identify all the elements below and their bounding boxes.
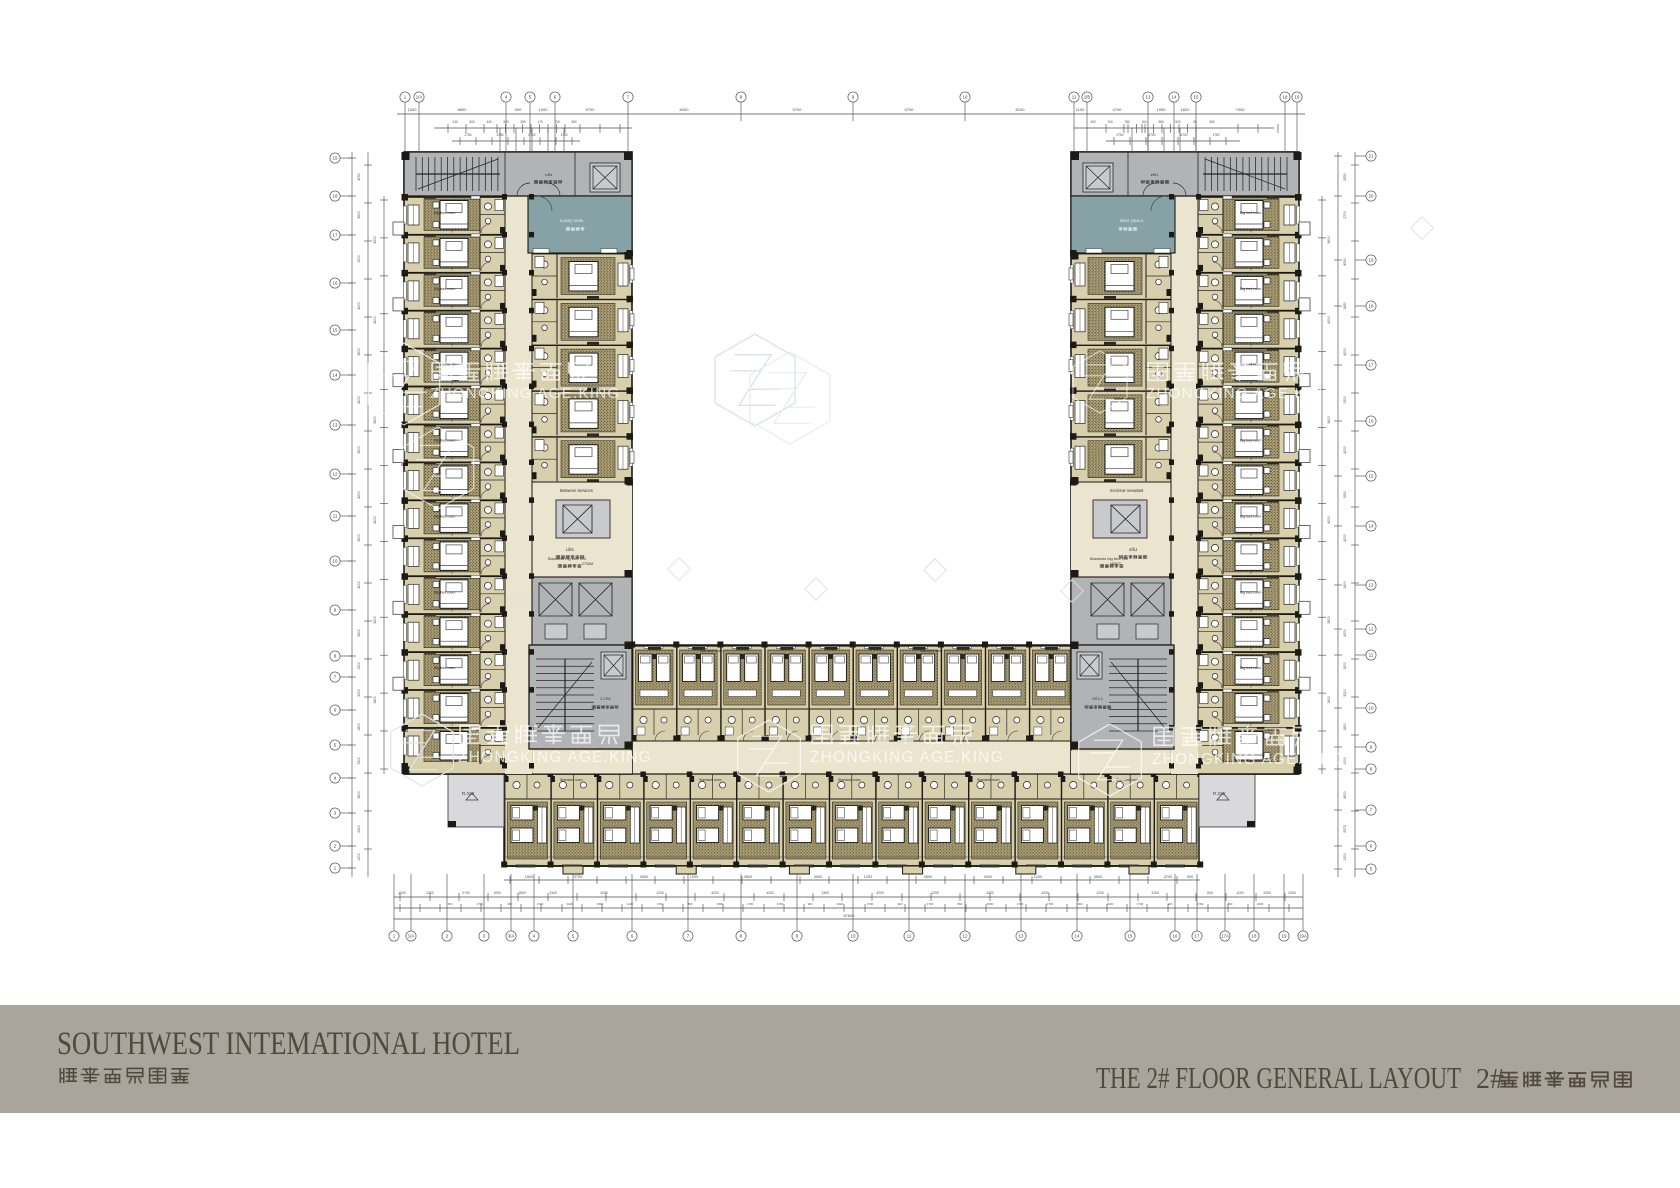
svg-text:ZHONGKING AGE.KING: ZHONGKING AGE.KING [810,749,1004,766]
svg-text:3600: 3600 [357,348,361,356]
svg-text:Big bed room: Big bed room [1240,287,1261,291]
svg-text:4050: 4050 [357,173,361,181]
svg-text:1700: 1700 [867,902,874,906]
svg-text:1200: 1200 [1096,891,1104,895]
svg-text:16: 16 [1369,419,1374,424]
svg-text:R.220: R.220 [1213,791,1226,796]
svg-text:17: 17 [1195,934,1200,939]
svg-text:1100: 1100 [1076,107,1085,112]
svg-text:3300: 3300 [1343,689,1347,697]
svg-text:12: 12 [1369,627,1374,632]
svg-text:3300: 3300 [640,875,648,879]
svg-text:3600: 3600 [357,534,361,542]
svg-text:3550: 3550 [1343,173,1347,181]
svg-text:1760: 1760 [927,902,934,906]
svg-text:440: 440 [486,120,492,124]
svg-text:13: 13 [1019,934,1024,939]
svg-text:2750: 2750 [1116,133,1123,137]
svg-text:1850: 1850 [1343,302,1347,310]
svg-text:Standard room: Standard room [920,649,943,653]
svg-text:1.17M: 1.17M [600,697,611,701]
svg-text:3700: 3700 [574,875,582,879]
svg-text:1500: 1500 [357,255,361,263]
svg-text:1500: 1500 [987,902,994,906]
svg-text:3600: 3600 [1327,616,1331,624]
svg-text:2300: 2300 [1263,891,1271,895]
svg-text:960: 960 [808,902,813,906]
svg-text:2#: 2# [1476,1063,1504,1095]
svg-text:4700: 4700 [1113,107,1123,112]
svg-text:13: 13 [1146,95,1151,100]
svg-text:3600: 3600 [373,616,377,624]
svg-text:1800: 1800 [373,696,377,704]
svg-text:4200: 4200 [373,516,377,524]
svg-text:3600: 3600 [373,416,377,424]
svg-text:19: 19 [1369,258,1374,263]
svg-text:1620: 1620 [837,902,844,906]
svg-text:1800: 1800 [1343,723,1347,731]
svg-text:90: 90 [1193,120,1197,124]
svg-text:1820: 1820 [1181,107,1191,112]
svg-text:1760: 1760 [657,902,664,906]
svg-text:Big bed room: Big bed room [1240,211,1261,215]
svg-text:3500: 3500 [924,875,932,879]
svg-text:1100: 1100 [627,902,634,906]
svg-text:4550: 4550 [1343,258,1347,266]
svg-text:2400: 2400 [426,891,434,895]
svg-text:1760: 1760 [477,902,484,906]
svg-text:1200: 1200 [1034,875,1042,879]
svg-text:1000: 1000 [408,107,418,112]
svg-text:1200: 1200 [931,891,939,895]
svg-text:67600: 67600 [843,913,855,918]
svg-text:ZHONGKING AGE.KING: ZHONGKING AGE.KING [1146,385,1336,402]
svg-text:18: 18 [333,194,338,199]
svg-text:3500: 3500 [744,875,752,879]
svg-text:520: 520 [503,120,509,124]
svg-text:Big bed room: Big bed room [434,666,455,670]
svg-text:4200: 4200 [357,491,361,499]
svg-text:Big bed room: Big bed room [1240,666,1261,670]
svg-text:10: 10 [963,95,968,100]
svg-text:15: 15 [333,328,338,333]
svg-text:16: 16 [1173,934,1178,939]
svg-text:11: 11 [333,514,338,519]
svg-text:1300: 1300 [1343,853,1347,861]
svg-text:860: 860 [958,902,963,906]
svg-text:19A: 19A [1299,934,1307,939]
svg-text:3100: 3100 [549,891,557,895]
svg-text:8400: 8400 [680,107,690,112]
svg-text:14: 14 [1172,95,1177,100]
svg-text:2400: 2400 [1288,891,1296,895]
svg-text:1/A: 1/A [416,95,423,100]
svg-text:1200: 1200 [864,875,872,879]
svg-text:1750: 1750 [1212,133,1219,137]
svg-text:1/A: 1/A [408,934,415,939]
svg-text:960: 960 [1078,902,1083,906]
svg-text:400: 400 [1090,120,1096,124]
svg-text:1700: 1700 [1017,902,1024,906]
svg-text:14: 14 [1075,934,1080,939]
svg-text:Between services: Between services [560,488,593,493]
svg-text:980: 980 [1158,120,1164,124]
svg-text:1530: 1530 [1343,491,1347,499]
svg-text:8100: 8100 [1016,107,1026,112]
svg-text:1200: 1200 [690,875,698,879]
svg-text:1700: 1700 [747,902,754,906]
svg-text:4200: 4200 [986,891,994,895]
svg-text:ZHONGKING AGE.KING: ZHONGKING AGE.KING [1152,751,1346,768]
svg-text:14: 14 [333,373,338,378]
svg-text:Big bed room: Big bed room [434,514,455,518]
svg-text:Big bed room: Big bed room [1240,514,1261,518]
svg-text:4200: 4200 [1343,348,1347,356]
svg-text:1700: 1700 [537,902,544,906]
svg-text:4200: 4200 [357,396,361,404]
svg-text:1100: 1100 [1236,891,1243,895]
svg-text:9700: 9700 [905,107,915,112]
svg-text:3100: 3100 [1151,891,1159,895]
svg-text:2573: 2573 [1343,825,1347,833]
svg-text:3300: 3300 [357,689,361,697]
svg-text:900: 900 [515,107,522,112]
svg-text:2700: 2700 [1343,211,1347,219]
svg-text:3700: 3700 [1164,875,1172,879]
svg-text:1500: 1500 [525,875,533,879]
svg-text:4200: 4200 [1343,629,1347,637]
svg-text:150: 150 [448,902,453,906]
svg-text:3500: 3500 [1094,875,1102,879]
svg-text:1700: 1700 [1137,902,1144,906]
svg-text:10: 10 [333,559,338,564]
svg-text:1500: 1500 [357,662,361,670]
svg-text:10: 10 [851,934,856,939]
svg-text:4200: 4200 [357,581,361,589]
svg-text:Big bed room: Big bed room [434,590,455,594]
svg-text:15: 15 [1128,934,1133,939]
svg-text:19: 19 [1295,95,1300,100]
svg-text:1500: 1500 [1257,902,1264,906]
svg-text:500: 500 [469,120,475,124]
svg-text:1000: 1000 [398,891,406,895]
svg-text:6700: 6700 [1180,133,1187,137]
svg-text:1000: 1000 [493,891,501,895]
svg-text:4200: 4200 [1327,516,1331,524]
svg-text:1500: 1500 [1343,662,1347,670]
svg-text:2700M: 2700M [582,562,593,566]
svg-text:SOUTHWEST INTEMATIONAL HOTEL: SOUTHWEST INTEMATIONAL HOTEL [57,1026,520,1062]
svg-text:Standard room: Standard room [560,778,583,782]
svg-text:21: 21 [1369,154,1374,159]
svg-text:15: 15 [1194,95,1199,100]
svg-text:5700: 5700 [793,107,803,112]
svg-text:THE 2# FLOOR GENERAL LAYOUT: THE 2# FLOOR GENERAL LAYOUT [1096,1060,1461,1095]
svg-text:Big bed room: Big bed room [434,287,455,291]
svg-text:Standard room: Standard room [838,778,861,782]
svg-text:17: 17 [333,233,338,238]
svg-text:1800: 1800 [1343,581,1347,589]
svg-text:Big bed room: Big bed room [1240,439,1261,443]
svg-text:6700: 6700 [528,133,535,137]
svg-text:1620: 1620 [1107,902,1114,906]
svg-text:1760: 1760 [1197,902,1204,906]
svg-text:19: 19 [1282,934,1287,939]
svg-text:3/A: 3/A [508,934,515,939]
svg-text:13: 13 [1369,583,1374,588]
svg-text:R.220: R.220 [462,791,475,796]
svg-text:4200: 4200 [876,891,884,895]
svg-text:3600: 3600 [373,236,377,244]
svg-text:860: 860 [688,902,693,906]
svg-text:3600: 3600 [1327,416,1331,424]
svg-text:4200: 4200 [600,891,608,895]
svg-text:17: 17 [1369,363,1374,368]
svg-text:Standard room: Standard room [699,778,722,782]
svg-text:7400: 7400 [357,757,361,765]
svg-text:4200: 4200 [1343,534,1347,542]
svg-text:4750: 4750 [1148,133,1155,137]
svg-text:140: 140 [452,120,458,124]
svg-text:3600: 3600 [357,446,361,454]
svg-text:Big bed room: Big bed room [1240,590,1261,594]
svg-text:1300: 1300 [821,891,829,895]
svg-text:4200: 4200 [357,302,361,310]
svg-text:4200: 4200 [1343,446,1347,454]
svg-text:11: 11 [907,934,912,939]
svg-text:2750: 2750 [464,133,471,137]
svg-text:Big bed room: Big bed room [434,211,455,215]
svg-text:Big bed room: Big bed room [434,439,455,443]
svg-text:1800: 1800 [518,891,526,895]
svg-text:4200: 4200 [373,316,377,324]
svg-text:Luxury room: Luxury room [560,218,584,223]
svg-text:4500: 4500 [1343,791,1347,799]
svg-text:ZHONGKING AGE.KING: ZHONGKING AGE.KING [430,385,620,402]
svg-text:12: 12 [333,472,338,477]
svg-text:3600: 3600 [357,629,361,637]
svg-text:17A: 17A [1221,934,1229,939]
svg-text:8800: 8800 [458,107,468,112]
svg-text:14: 14 [1369,524,1374,529]
svg-text:4200: 4200 [1041,891,1049,895]
svg-text:830: 830 [1207,891,1213,895]
svg-text:920: 920 [898,902,903,906]
svg-text:1800: 1800 [357,723,361,731]
svg-text:920: 920 [1168,902,1173,906]
svg-text:Lifts: Lifts [545,172,552,177]
svg-text:20: 20 [1369,194,1374,199]
svg-text:360: 360 [571,120,577,124]
svg-text:360: 360 [1209,120,1215,124]
svg-text:16: 16 [333,281,338,286]
svg-text:18: 18 [1283,95,1288,100]
svg-text:18: 18 [1252,934,1257,939]
svg-text:4200: 4200 [766,891,774,895]
svg-text:170: 170 [537,120,543,124]
svg-text:700: 700 [1107,120,1113,124]
svg-text:3000: 3000 [814,875,822,879]
svg-text:1/B: 1/B [1084,95,1091,100]
svg-text:1760: 1760 [1047,902,1054,906]
svg-text:12: 12 [963,934,968,939]
svg-text:1200: 1200 [357,853,361,861]
svg-text:11: 11 [1072,95,1077,100]
svg-text:Business big bed RM: Business big bed RM [1090,556,1128,561]
svg-text:3600: 3600 [1327,236,1331,244]
svg-text:1620: 1620 [567,902,574,906]
svg-text:4200: 4200 [1327,316,1331,324]
svg-text:900: 900 [1187,875,1193,879]
svg-text:1760: 1760 [777,902,784,906]
svg-text:2700: 2700 [462,891,470,895]
svg-text:960: 960 [508,902,513,906]
svg-text:15: 15 [1369,474,1374,479]
svg-text:1500: 1500 [597,902,604,906]
svg-text:10: 10 [1369,706,1374,711]
svg-text:164: 164 [1141,120,1147,124]
svg-text:19: 19 [333,156,338,161]
svg-text:350: 350 [520,120,526,124]
svg-text:780: 780 [1124,120,1130,124]
svg-text:2400: 2400 [357,825,361,833]
svg-text:Standard room: Standard room [700,649,723,653]
svg-text:Standard room: Standard room [977,778,1000,782]
svg-text:520: 520 [1175,120,1181,124]
svg-text:3600: 3600 [357,791,361,799]
svg-text:3600: 3600 [357,211,361,219]
svg-text:11: 11 [1369,653,1374,658]
svg-text:4200: 4200 [711,891,719,895]
svg-text:Business big bed RM: Business big bed RM [548,556,586,561]
svg-text:1500: 1500 [1343,396,1347,404]
svg-text:Lifts: Lifts [566,547,574,552]
svg-text:1950: 1950 [1157,107,1167,112]
svg-text:1200: 1200 [656,891,664,895]
svg-text:4750: 4750 [496,133,503,137]
svg-text:7900: 7900 [1236,107,1246,112]
svg-text:13: 13 [333,423,338,428]
svg-text:1750: 1750 [560,133,567,137]
svg-text:ZHONGKING AGE.KING: ZHONGKING AGE.KING [458,749,652,766]
svg-text:700: 700 [554,120,560,124]
svg-text:1800: 1800 [1327,696,1331,704]
svg-text:3000: 3000 [984,875,992,879]
svg-text:860: 860 [1228,902,1233,906]
svg-text:1400: 1400 [539,107,549,112]
svg-text:18: 18 [1369,304,1374,309]
svg-text:5700: 5700 [586,107,596,112]
svg-text:1500: 1500 [717,902,724,906]
